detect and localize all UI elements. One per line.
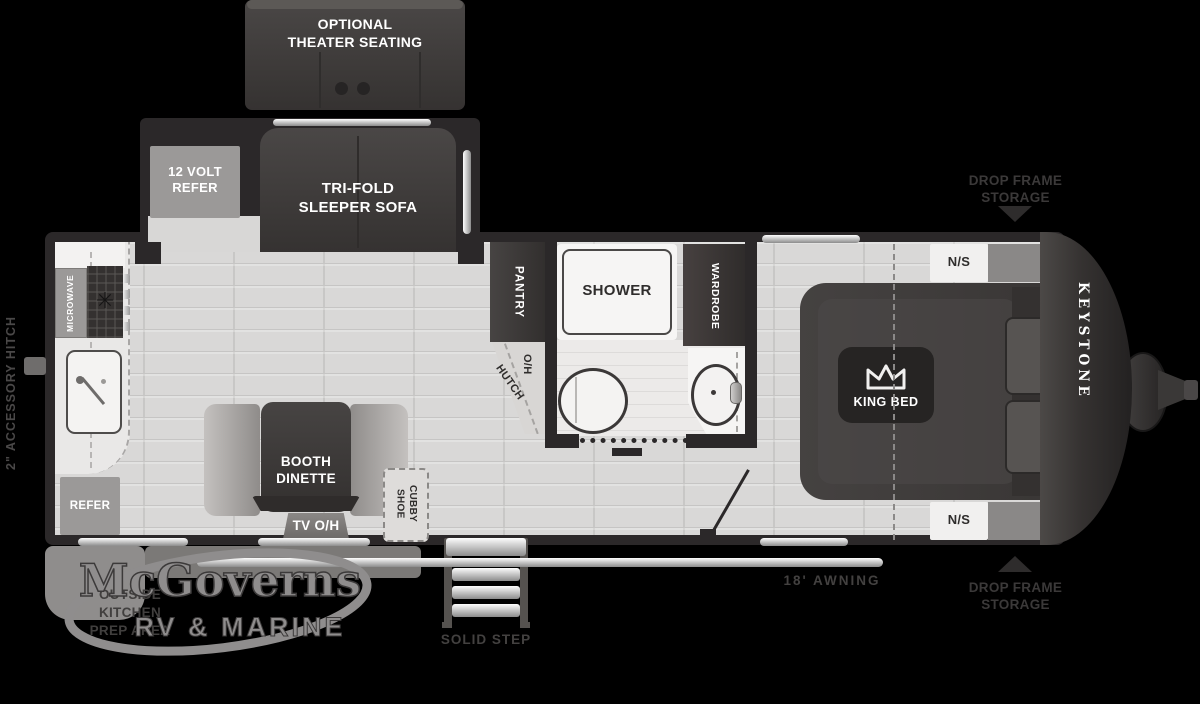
- wardrobe: WARDROBE: [683, 244, 745, 346]
- pantry: PANTRY: [490, 242, 545, 342]
- pantry-label: PANTRY: [511, 250, 525, 334]
- nightstand-rear-label: N/S: [930, 512, 988, 528]
- bath-wall-right: [745, 242, 757, 448]
- microwave-label: MICROWAVE: [65, 273, 76, 333]
- hitch-coupler-tip: [1184, 380, 1198, 400]
- bath-wall-left: [545, 242, 557, 448]
- king-bed-badge: KING BED: [838, 347, 934, 423]
- toilet-seat-line: [575, 377, 577, 423]
- step-tread: [452, 604, 520, 617]
- window-bar: [762, 235, 860, 243]
- step-tread: [452, 586, 520, 599]
- table-base: [252, 496, 360, 511]
- stove-knob: [123, 290, 130, 299]
- drain-icon: [101, 379, 106, 384]
- stove-knob: [123, 274, 130, 283]
- slide-window: [273, 119, 431, 126]
- shoe-cubby: SHOE CUBBY: [383, 468, 429, 542]
- wall-notch: [458, 242, 484, 264]
- bath-wall-bottom-left: [545, 434, 579, 448]
- wall-notch: [135, 242, 161, 264]
- drop-frame-front-label: DROP FRAME STORAGE: [958, 173, 1073, 207]
- keystone-label: KEYSTONE: [1074, 282, 1091, 495]
- burner-icon: ✳: [95, 291, 115, 311]
- booth-bench-left: [204, 404, 260, 516]
- theater-seating-slide: OPTIONAL THEATER SEATING: [245, 0, 465, 110]
- slide-side-window: [463, 150, 471, 234]
- awning-label: 18' AWNING: [762, 573, 902, 590]
- dealer-tagline: RV & MARINE: [95, 612, 385, 643]
- sofa-slide: 12 VOLT REFER TRI-FOLD SLEEPER SOFA: [140, 118, 480, 252]
- accessory-hitch-receiver: [24, 357, 46, 375]
- nightstand-front: N/S: [930, 244, 988, 282]
- kitchen-sink: [66, 350, 122, 434]
- cooktop: ✳: [87, 266, 123, 338]
- cupholder-icon: [335, 82, 348, 95]
- tv-overhead-label: TV O/H: [283, 518, 349, 535]
- shower-label: SHOWER: [557, 282, 677, 301]
- nightstand-front-label: N/S: [930, 254, 988, 270]
- wardrobe-label: WARDROBE: [708, 250, 721, 342]
- refer-label: REFER: [60, 499, 120, 513]
- tri-fold-sofa: TRI-FOLD SLEEPER SOFA: [260, 128, 456, 252]
- theater-seam-right: [419, 52, 421, 108]
- stove-knob: [123, 306, 130, 315]
- booth-table: BOOTH DINETTE: [261, 402, 351, 512]
- stove-knob: [123, 322, 130, 331]
- booth-label: BOOTH DINETTE: [261, 454, 351, 488]
- faucet-handle-icon: [76, 376, 84, 384]
- entry-steps: [440, 534, 532, 630]
- shower: SHOWER: [557, 244, 677, 340]
- slide-floor: [148, 216, 270, 252]
- dealer-name: McGoverns: [55, 554, 385, 607]
- theater-seam-left: [319, 52, 321, 108]
- arrow-up-icon: [998, 556, 1032, 572]
- drop-frame-divider: [893, 244, 895, 540]
- hitch-coupler-neck: [1158, 370, 1186, 410]
- refer-12v-box: 12 VOLT REFER: [150, 146, 240, 218]
- pocket-door-track: [580, 438, 688, 443]
- microwave-box: MICROWAVE: [55, 268, 87, 338]
- cupholder-icon: [357, 82, 370, 95]
- hutch-oh-label: O/H: [519, 354, 533, 374]
- theater-top-trim: [247, 0, 463, 9]
- theater-seating-label: OPTIONAL THEATER SEATING: [245, 16, 465, 51]
- bath-drain-icon: [711, 390, 716, 395]
- solid-step-label: SOLID STEP: [428, 632, 544, 649]
- king-bed-label: KING BED: [853, 395, 918, 409]
- shoe-cubby-label: SHOE CUBBY: [393, 474, 418, 534]
- accessory-hitch-label: 2" ACCESSORY HITCH: [4, 300, 20, 485]
- arrow-down-icon: [998, 206, 1032, 222]
- dealer-logo: McGoverns RV & MARINE: [55, 540, 385, 670]
- sofa-label: TRI-FOLD SLEEPER SOFA: [260, 180, 456, 218]
- nightstand-rear: N/S: [930, 502, 988, 540]
- refer-box: REFER: [60, 477, 120, 535]
- bath-wall-tab: [612, 448, 642, 456]
- step-tread: [452, 568, 520, 581]
- floorplan-canvas: OPTIONAL THEATER SEATING 12 VOLT REFER T…: [0, 0, 1200, 704]
- crown-icon: [861, 362, 911, 392]
- step-foot: [442, 622, 452, 628]
- toilet: [558, 368, 628, 434]
- step-tread: [446, 538, 526, 556]
- refer-12v-label: 12 VOLT REFER: [150, 164, 240, 197]
- front-cap: KEYSTONE: [1040, 232, 1132, 545]
- step-foot: [520, 622, 530, 628]
- bath-wall-bottom-right: [686, 434, 757, 448]
- drop-frame-rear-label: DROP FRAME STORAGE: [958, 580, 1073, 614]
- window-bar: [760, 538, 848, 546]
- tv-overhead: TV O/H: [283, 513, 349, 539]
- bath-faucet-icon: [730, 382, 742, 404]
